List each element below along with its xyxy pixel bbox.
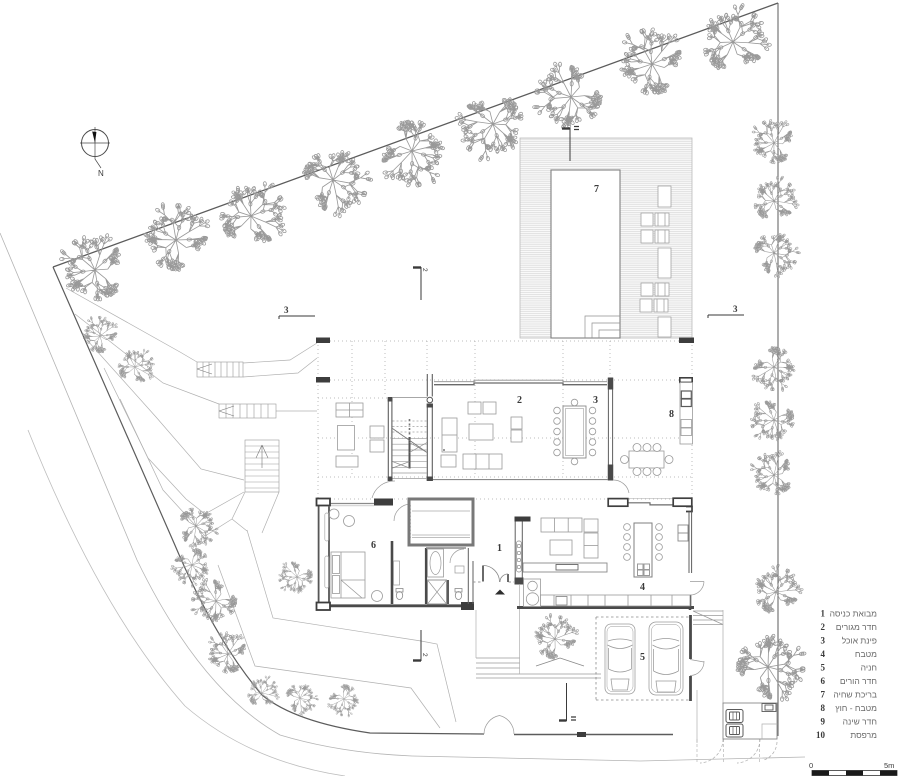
svg-text:1: 1 <box>821 609 826 619</box>
svg-text:9: 9 <box>821 717 826 727</box>
svg-text:1: 1 <box>497 543 502 554</box>
svg-text:8: 8 <box>821 703 826 713</box>
svg-text:5m: 5m <box>884 761 894 770</box>
svg-text:4: 4 <box>640 582 645 593</box>
svg-text:חניה: חניה <box>861 663 877 673</box>
svg-text:7: 7 <box>594 184 599 195</box>
svg-text:3: 3 <box>284 305 289 315</box>
svg-text:3: 3 <box>821 636 826 646</box>
svg-text:7: 7 <box>821 690 826 700</box>
svg-text:חדר שינה: חדר שינה <box>843 717 877 727</box>
svg-text:2: 2 <box>421 268 428 272</box>
svg-text:חדר הורים: חדר הורים <box>840 676 877 686</box>
svg-text:5: 5 <box>821 663 826 673</box>
svg-text:2: 2 <box>821 622 826 632</box>
svg-text:8: 8 <box>669 409 674 420</box>
svg-text:6: 6 <box>821 676 826 686</box>
svg-text:4: 4 <box>821 649 826 659</box>
svg-text:10: 10 <box>816 730 826 740</box>
svg-text:חדר מגורים: חדר מגורים <box>836 622 877 632</box>
svg-text:מבואת כניסה: מבואת כניסה <box>830 609 878 619</box>
svg-text:בריכת שחיה: בריכת שחיה <box>833 690 877 700</box>
svg-text:2: 2 <box>421 653 428 657</box>
svg-text:מטבח: מטבח <box>855 649 877 659</box>
svg-text:5: 5 <box>640 652 645 663</box>
svg-text:6: 6 <box>371 540 376 551</box>
svg-text:מטבח - חוץ: מטבח - חוץ <box>835 703 877 713</box>
svg-text:0: 0 <box>809 761 813 770</box>
svg-text:3: 3 <box>733 304 738 314</box>
svg-text:פינת אוכל: פינת אוכל <box>842 636 877 646</box>
svg-text:N: N <box>98 169 104 178</box>
svg-text:2: 2 <box>517 395 522 406</box>
svg-text:מרפסת: מרפסת <box>850 730 877 740</box>
svg-text:3: 3 <box>593 395 598 406</box>
